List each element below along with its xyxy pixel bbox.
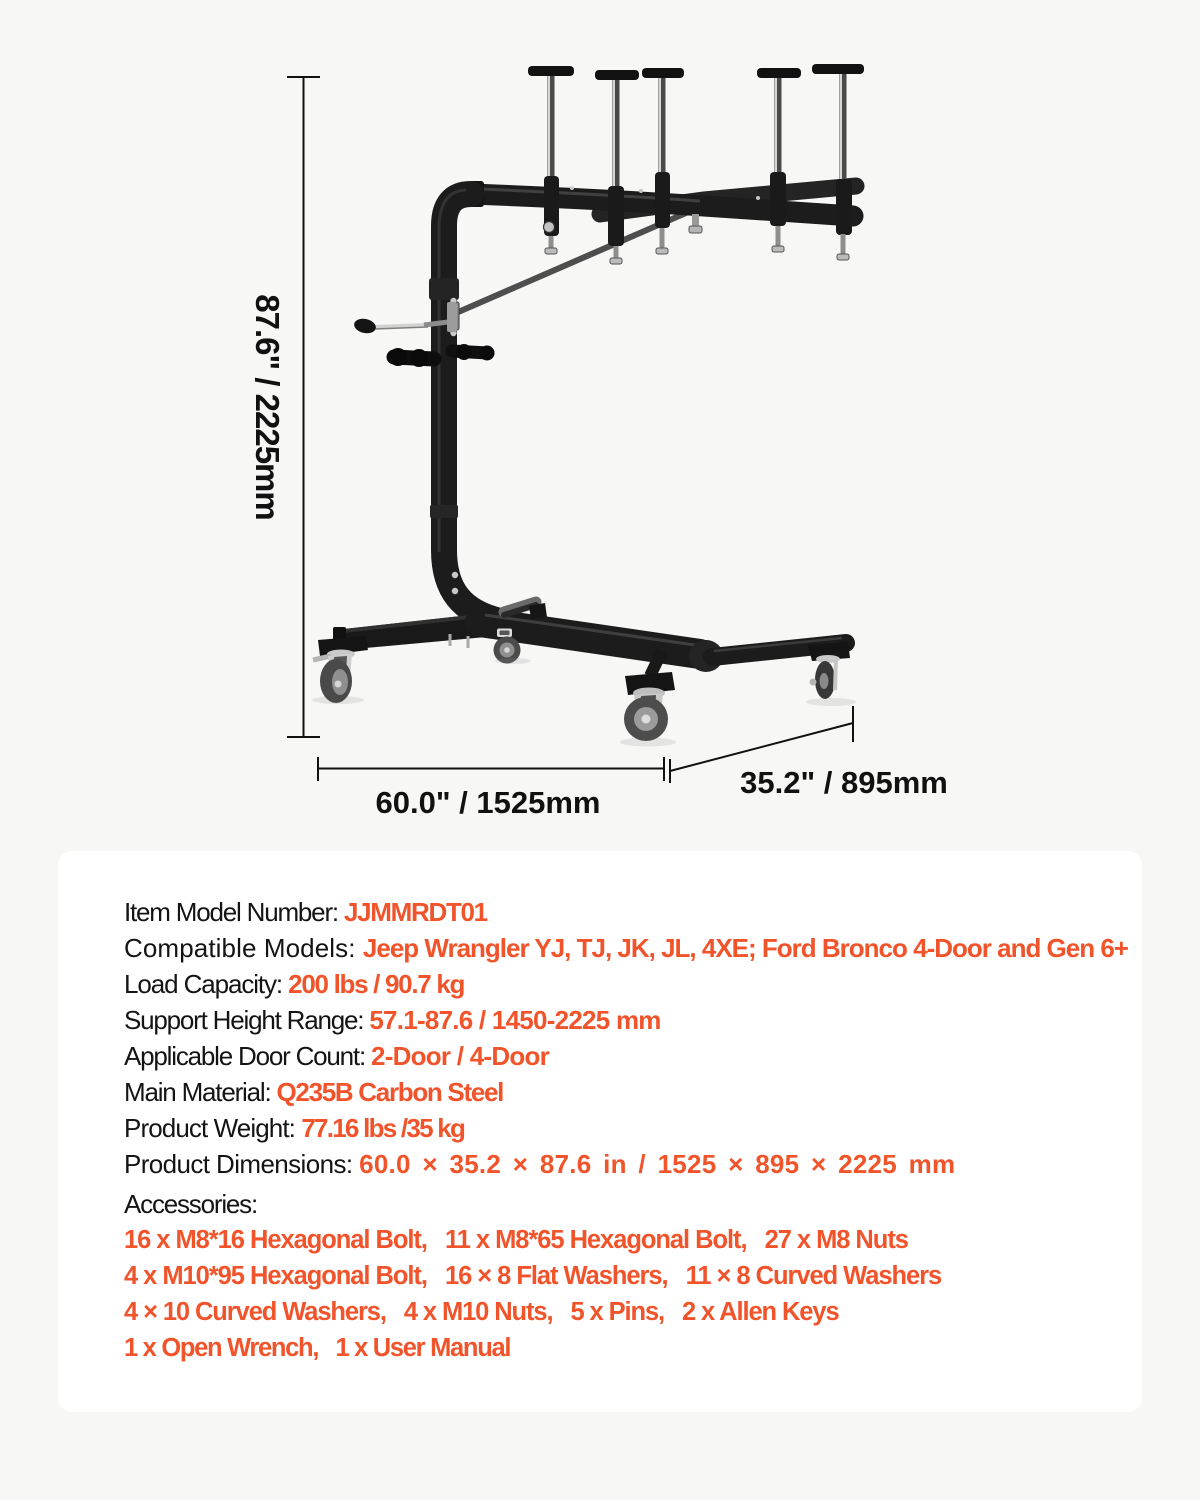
svg-text:60.0" / 1525mm: 60.0" / 1525mm	[376, 785, 601, 820]
svg-text:35.2" / 895mm: 35.2" / 895mm	[740, 765, 948, 800]
svg-text:87.6" / 2225mm: 87.6" / 2225mm	[249, 294, 286, 519]
